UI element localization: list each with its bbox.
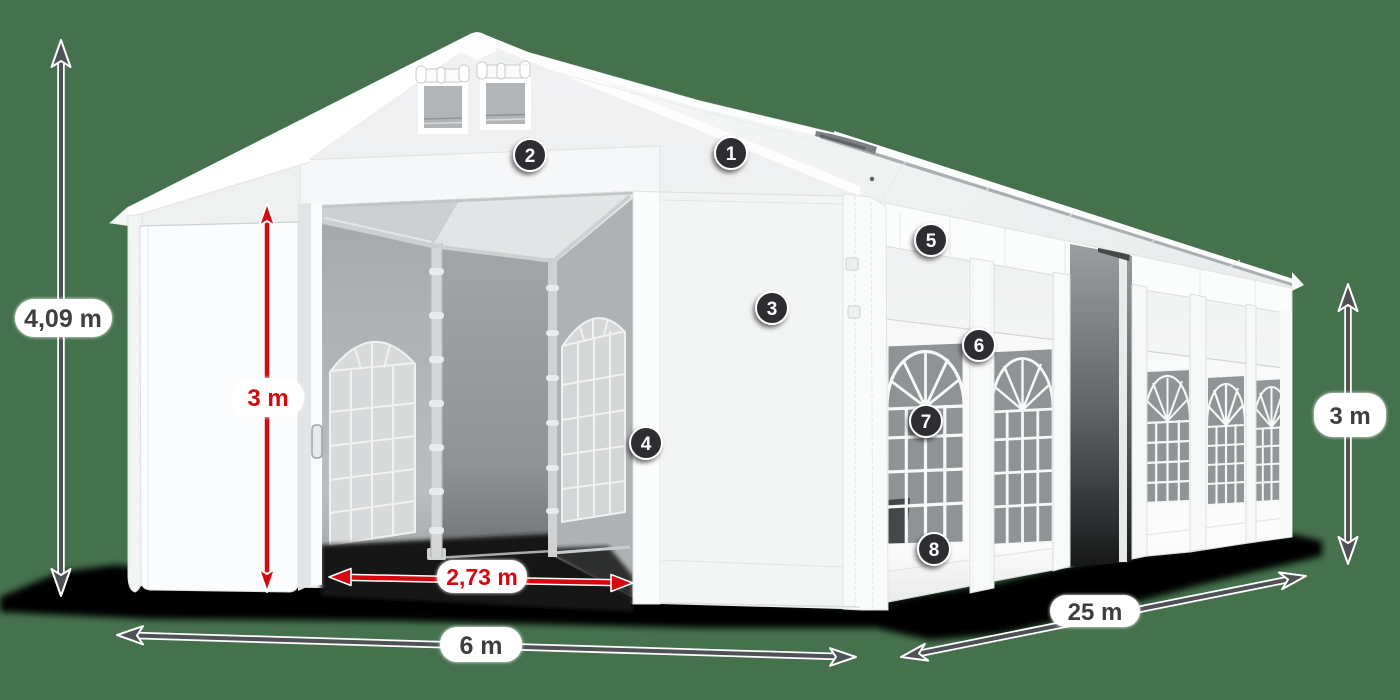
svg-text:4,09 m: 4,09 m bbox=[24, 305, 102, 333]
svg-text:3 m: 3 m bbox=[1329, 403, 1370, 430]
svg-text:3 m: 3 m bbox=[247, 385, 288, 412]
svg-text:3: 3 bbox=[767, 299, 778, 320]
svg-text:7: 7 bbox=[921, 412, 932, 433]
svg-text:6: 6 bbox=[974, 336, 985, 357]
svg-text:8: 8 bbox=[929, 540, 940, 561]
svg-text:6 m: 6 m bbox=[459, 632, 502, 660]
svg-text:1: 1 bbox=[726, 144, 737, 165]
svg-text:2: 2 bbox=[525, 146, 536, 167]
svg-text:5: 5 bbox=[926, 231, 937, 252]
svg-text:4: 4 bbox=[641, 434, 652, 455]
svg-text:25 m: 25 m bbox=[1068, 599, 1123, 626]
svg-text:2,73 m: 2,73 m bbox=[446, 564, 518, 590]
